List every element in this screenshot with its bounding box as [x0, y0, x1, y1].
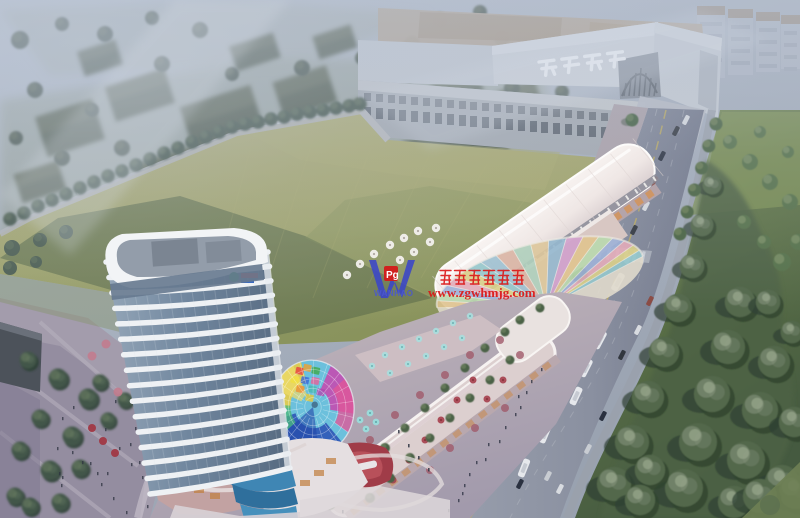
svg-text:www.zgwhmjg.com: www.zgwhmjg.com [428, 285, 536, 300]
svg-text:Pg: Pg [386, 270, 399, 281]
svg-text:WANHAO: WANHAO [374, 289, 413, 298]
